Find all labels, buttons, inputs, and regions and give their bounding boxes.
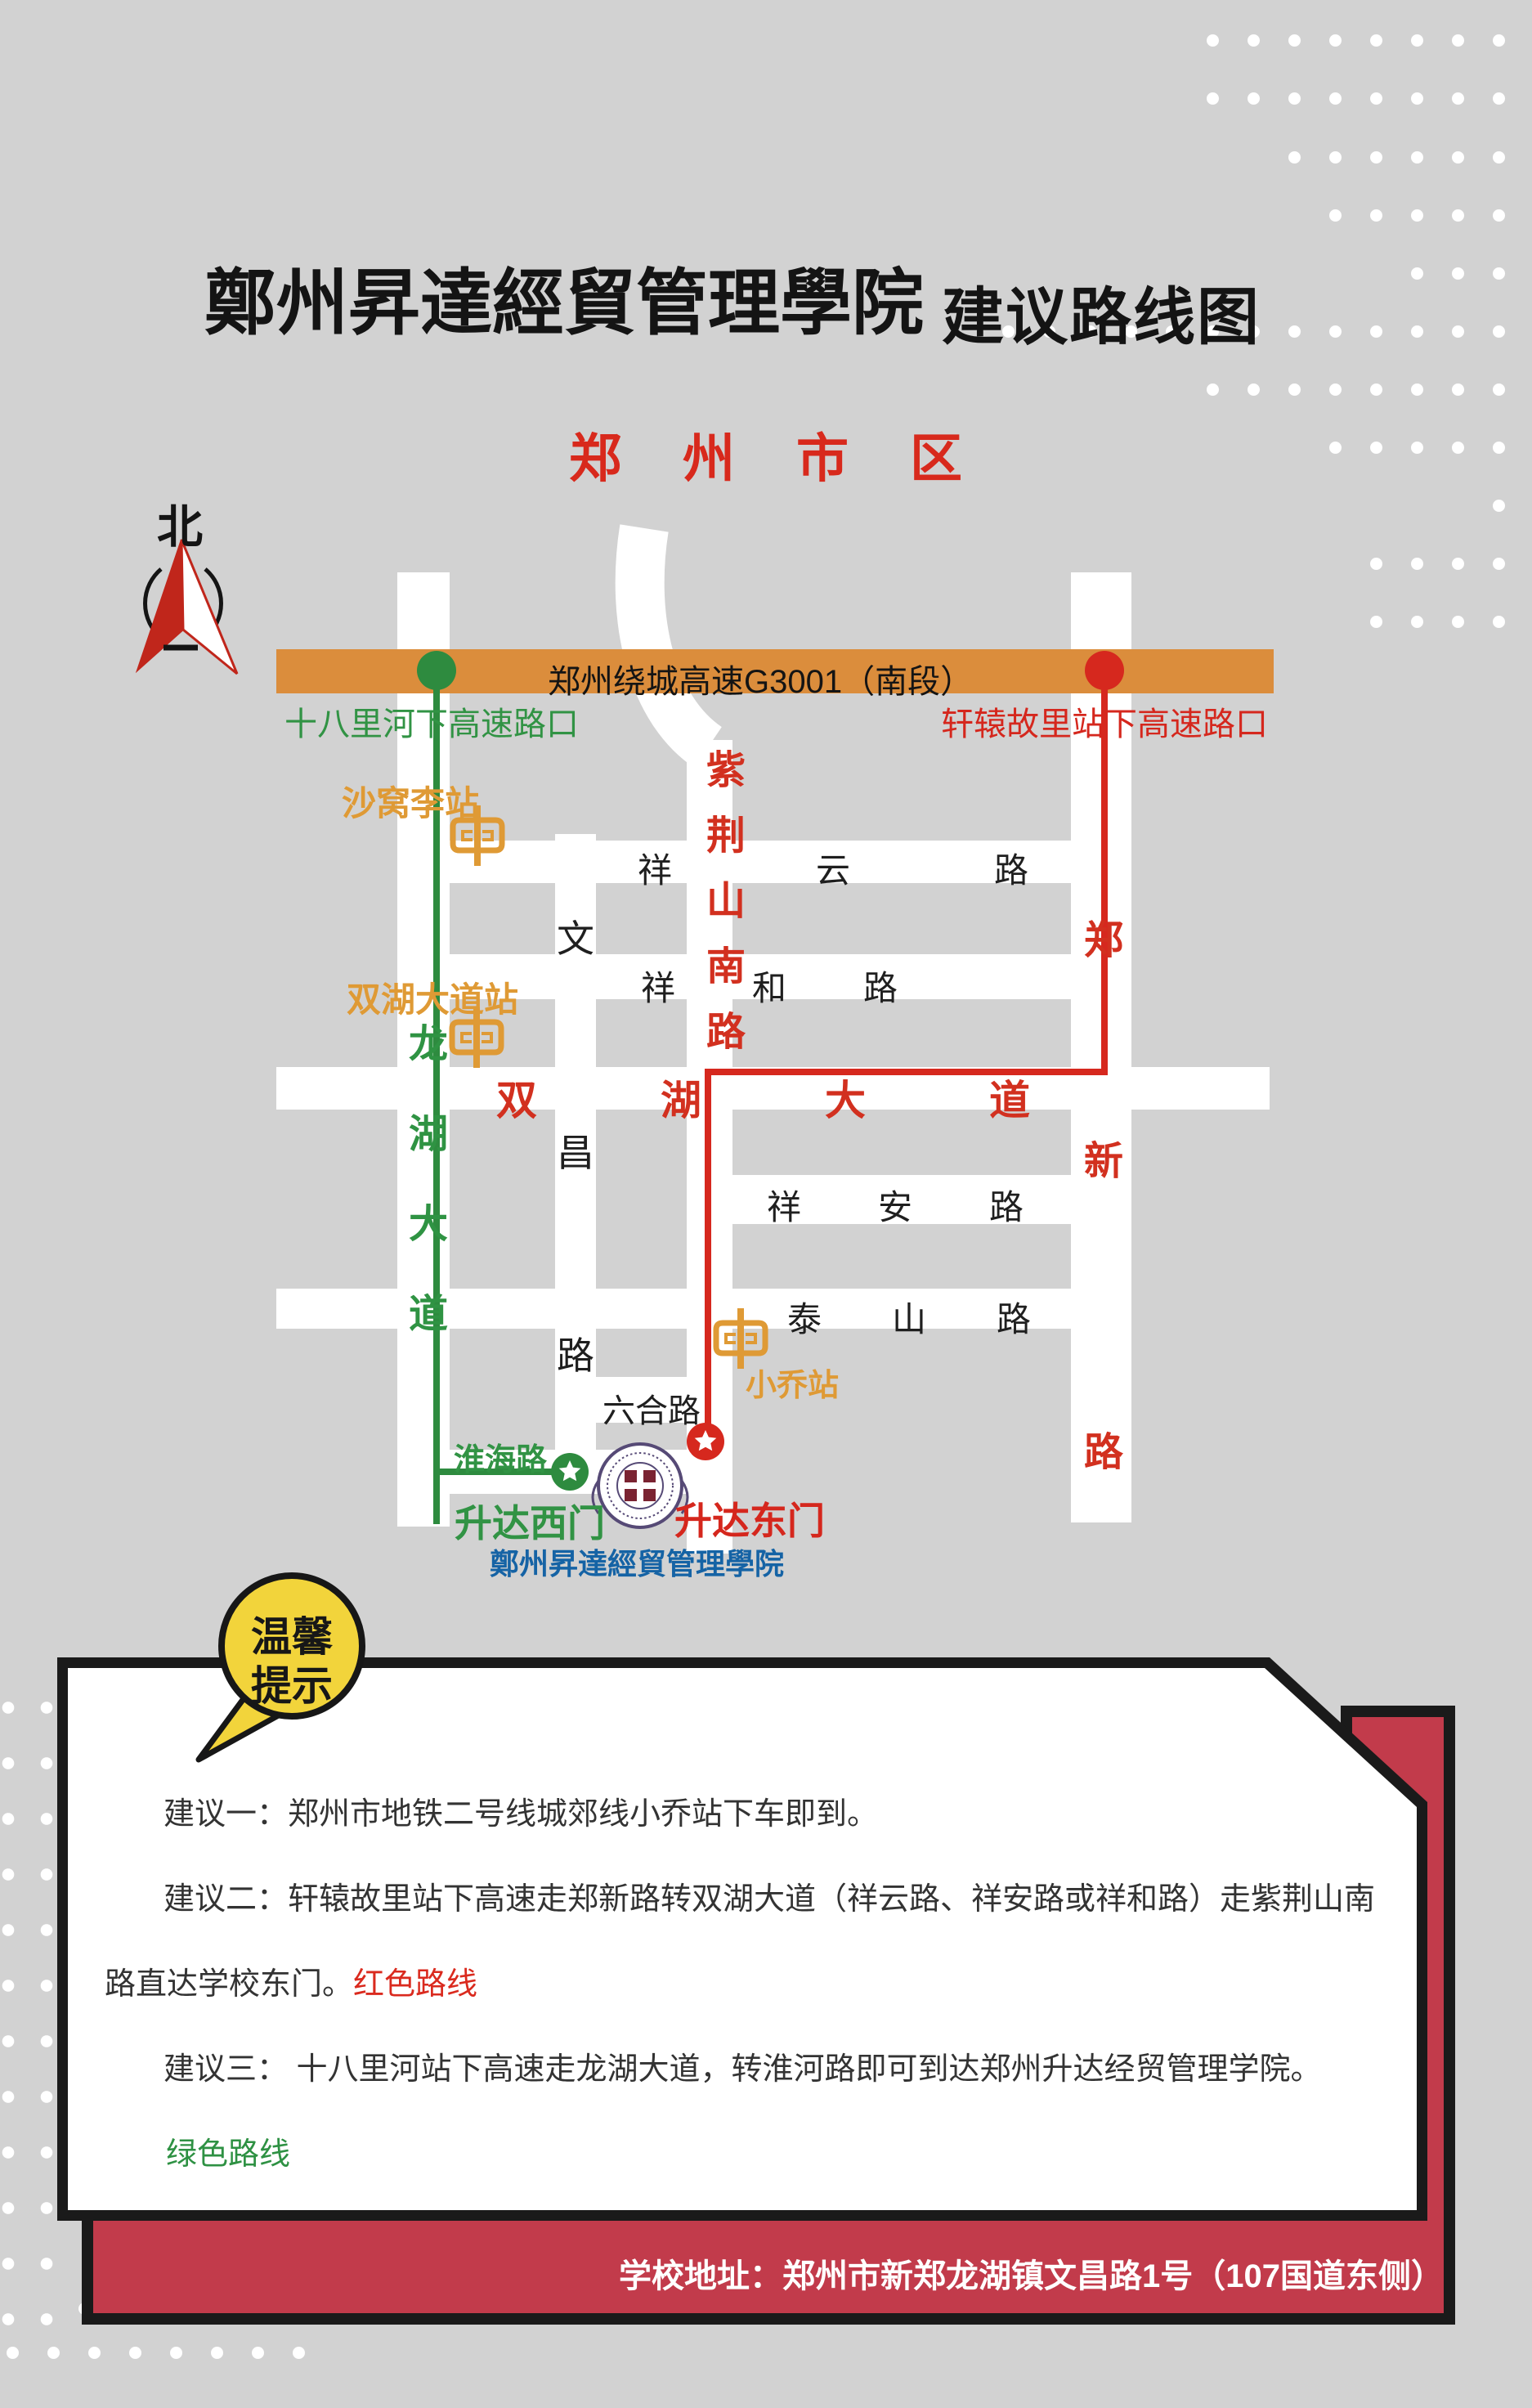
suggestion-line-3-highlight: 红色路线 [353, 1967, 477, 2002]
road-label-zhengxin-char: 新 [1084, 1128, 1123, 1186]
suggestion-line-5: 绿色路线 [166, 2128, 290, 2173]
exit-label-xuanyuanguli: 轩辕故里站下高速路口 [941, 697, 1268, 745]
suggestion-line-1: 建议一：郑州市地铁二号线城郊线小乔站下车即到。 [164, 1788, 878, 1833]
road-label-xianghe: 祥和路 [641, 961, 974, 1011]
school-address: 学校地址：郑州市新郑龙湖镇文昌路1号（107国道东侧） [93, 2249, 1506, 2297]
west-gate-star-marker [551, 1453, 589, 1491]
station-label-xiaoqiao: 小乔站 [746, 1360, 839, 1405]
road-label-zhengxin-char: 路 [1084, 1419, 1123, 1477]
suggestion-line-2: 建议二：轩辕故里站下高速走郑新路转双湖大道（祥云路、祥安路或祥和路）走紫荆山南 [164, 1873, 1375, 1918]
road-zhengxin-north-stub [1071, 572, 1131, 649]
suggestion-line-4: 建议三： 十八里河站下高速走龙湖大道，转淮河路即可到达郑州升达经贸管理学院。 [164, 2043, 1322, 2088]
road-label-zhengxin-char: 郑 [1084, 908, 1123, 965]
road-label-wenchang-char: 昌 [557, 1123, 594, 1177]
road-label-wenchang-char: 路 [557, 1326, 594, 1380]
road-longhu-north-stub [397, 572, 450, 649]
exit-label-shibalihe: 十八里河下高速路口 [284, 697, 579, 745]
station-label-shuanghudadao: 双湖大道站 [347, 972, 518, 1022]
region-title: 郑州市区 [569, 417, 1024, 492]
road-label-shuanghu: 双湖大道 [496, 1068, 1153, 1127]
station-label-shawoli: 沙窝李站 [342, 776, 479, 826]
road-zijinshan-curve [640, 528, 708, 747]
tip-bubble-line2: 提示 [202, 1653, 382, 1712]
road-label-xiangan: 祥安路 [767, 1180, 1100, 1230]
compass-north-label: 北 [157, 491, 203, 557]
road-label-xiangyun: 祥云路 [638, 843, 1172, 893]
school-name-label: 鄭州昇達經貿管理學院 [490, 1540, 784, 1583]
road-label-zijinshan: 紫荆山南路 [692, 749, 750, 1076]
route-map-poster: { "title": { "calligraphy": "鄭州昇達經貿管理學院"… [0, 0, 1532, 2408]
road-label-huaihai: 淮海路 [454, 1434, 547, 1479]
suggestion-line-3: 路直达学校东门。红色路线 [105, 1958, 477, 2003]
road-label-liuhe: 六合路 [602, 1384, 701, 1432]
gate-label-east: 升达东门 [674, 1491, 825, 1545]
road-label-longhu: 龙湖大道 [395, 1023, 452, 1383]
red-exit-dot [1085, 651, 1124, 690]
road-label-taishan: 泰山路 [787, 1292, 1101, 1342]
green-exit-dot [417, 651, 456, 690]
suggestion-line-3-text: 路直达学校东门。 [105, 1967, 353, 2002]
poster-title-suffix: 建议路线图 [942, 267, 1261, 356]
highway-label: 郑州绕城高速G3001（南段） [548, 655, 973, 702]
compass-icon [137, 540, 237, 674]
poster-title-calligraphy: 鄭州昇達經貿管理學院 [204, 245, 924, 349]
road-label-wenchang-char: 文 [557, 909, 594, 963]
